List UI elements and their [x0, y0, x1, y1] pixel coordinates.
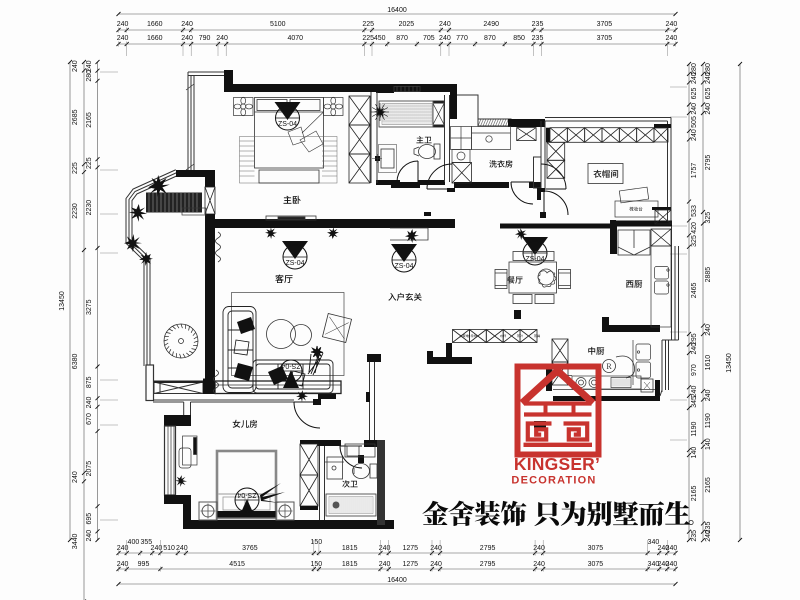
svg-text:1660: 1660 [147, 35, 163, 42]
svg-text:235: 235 [532, 35, 544, 42]
svg-text:420: 420 [691, 222, 698, 234]
svg-text:1190: 1190 [705, 413, 712, 428]
svg-text:695: 695 [86, 513, 93, 525]
svg-text:150: 150 [310, 539, 322, 546]
svg-text:ZS-04: ZS-04 [285, 260, 304, 267]
svg-text:3765: 3765 [242, 545, 258, 552]
svg-text:2465: 2465 [691, 283, 698, 299]
svg-text:870: 870 [484, 35, 496, 42]
svg-text:2075: 2075 [86, 461, 93, 477]
svg-text:850: 850 [513, 35, 525, 42]
svg-text:ZS-04: ZS-04 [278, 121, 297, 128]
svg-text:2795: 2795 [480, 561, 496, 568]
svg-text:1815: 1815 [342, 545, 358, 552]
svg-text:2025: 2025 [399, 21, 415, 28]
svg-text:240: 240 [666, 35, 678, 42]
svg-text:DECORATION: DECORATION [511, 475, 596, 487]
svg-text:2685: 2685 [72, 109, 79, 125]
svg-text:4515: 4515 [229, 561, 245, 568]
svg-text:13450: 13450 [726, 353, 733, 373]
svg-text:5100: 5100 [270, 21, 286, 28]
svg-text:325: 325 [705, 212, 712, 224]
svg-text:2165: 2165 [691, 486, 698, 502]
svg-text:995: 995 [138, 561, 150, 568]
svg-text:240: 240 [216, 35, 228, 42]
svg-text:770: 770 [456, 35, 468, 42]
svg-text:240: 240 [666, 21, 678, 28]
svg-text:KINGSER’: KINGSER’ [514, 454, 600, 474]
svg-text:R: R [606, 362, 612, 371]
svg-text:240: 240 [691, 129, 698, 141]
svg-text:240: 240 [117, 561, 129, 568]
svg-text:13450: 13450 [59, 291, 66, 311]
svg-text:225: 225 [72, 162, 79, 174]
svg-text:400: 400 [128, 539, 140, 546]
svg-text:235: 235 [691, 530, 698, 542]
svg-text:240: 240 [117, 35, 129, 42]
svg-text:240: 240 [691, 72, 698, 84]
svg-text:1190: 1190 [691, 421, 698, 436]
svg-text:505: 505 [691, 116, 698, 128]
svg-text:240: 240 [666, 561, 678, 568]
svg-text:140: 140 [705, 438, 712, 450]
svg-text:2490: 2490 [483, 21, 499, 28]
svg-text:16400: 16400 [387, 7, 407, 14]
svg-text:1660: 1660 [147, 21, 163, 28]
svg-text:225: 225 [362, 35, 374, 42]
svg-text:2230: 2230 [72, 203, 79, 219]
svg-text:625: 625 [705, 88, 712, 100]
svg-text:16400: 16400 [387, 577, 407, 584]
svg-text:1757: 1757 [691, 163, 698, 179]
svg-text:325: 325 [691, 235, 698, 247]
svg-text:2885: 2885 [705, 267, 712, 283]
svg-text:3075: 3075 [588, 545, 604, 552]
svg-text:3075: 3075 [588, 561, 604, 568]
svg-text:625: 625 [691, 88, 698, 100]
svg-text:6380: 6380 [72, 354, 79, 370]
svg-text:4070: 4070 [288, 35, 304, 42]
svg-text:240: 240 [691, 386, 698, 398]
svg-text:240: 240 [86, 530, 93, 542]
svg-text:2795: 2795 [480, 545, 496, 552]
svg-text:240: 240 [705, 72, 712, 84]
svg-text:970: 970 [691, 364, 698, 376]
svg-text:3440: 3440 [72, 534, 79, 550]
svg-text:140: 140 [691, 447, 698, 459]
svg-text:1275: 1275 [403, 561, 419, 568]
svg-text:240: 240 [72, 60, 79, 72]
svg-text:235: 235 [532, 21, 544, 28]
svg-text:225: 225 [86, 157, 93, 169]
svg-text:280: 280 [86, 70, 93, 82]
svg-text:450: 450 [374, 35, 386, 42]
svg-text:2165: 2165 [705, 477, 712, 493]
svg-text:3705: 3705 [597, 21, 613, 28]
svg-text:1275: 1275 [403, 545, 419, 552]
svg-text:2165: 2165 [86, 112, 93, 128]
svg-text:2230: 2230 [86, 200, 93, 216]
svg-text:240: 240 [72, 471, 79, 483]
svg-text:ZS-04: ZS-04 [281, 362, 300, 369]
svg-text:875: 875 [86, 376, 93, 388]
svg-text:240: 240 [705, 103, 712, 115]
svg-text:533: 533 [691, 205, 698, 217]
svg-text:ZS-04: ZS-04 [394, 263, 413, 270]
svg-text:240: 240 [691, 103, 698, 115]
svg-text:240: 240 [705, 530, 712, 542]
svg-text:240: 240 [430, 561, 442, 568]
svg-text:790: 790 [199, 35, 211, 42]
svg-text:240: 240 [705, 389, 712, 401]
svg-text:240: 240 [705, 324, 712, 336]
svg-text:240: 240 [439, 35, 451, 42]
svg-text:240: 240 [379, 561, 391, 568]
svg-text:240: 240 [181, 21, 193, 28]
svg-text:225: 225 [362, 21, 374, 28]
svg-text:240: 240 [691, 343, 698, 355]
svg-text:870: 870 [396, 35, 408, 42]
svg-text:3275: 3275 [86, 299, 93, 315]
svg-text:1610: 1610 [705, 355, 712, 371]
svg-text:345: 345 [691, 396, 698, 408]
svg-text:670: 670 [86, 413, 93, 425]
svg-text:240: 240 [176, 545, 188, 552]
svg-text:510: 510 [163, 545, 175, 552]
svg-text:1815: 1815 [342, 561, 358, 568]
svg-text:705: 705 [423, 35, 435, 42]
svg-text:240: 240 [181, 35, 193, 42]
svg-text:240: 240 [533, 561, 545, 568]
svg-text:2795: 2795 [705, 155, 712, 171]
svg-text:3705: 3705 [597, 35, 613, 42]
svg-text:240: 240 [439, 21, 451, 28]
svg-text:240: 240 [117, 21, 129, 28]
svg-text:240: 240 [86, 397, 93, 409]
svg-text:ZS-04: ZS-04 [237, 491, 256, 498]
svg-text:150: 150 [310, 561, 322, 568]
